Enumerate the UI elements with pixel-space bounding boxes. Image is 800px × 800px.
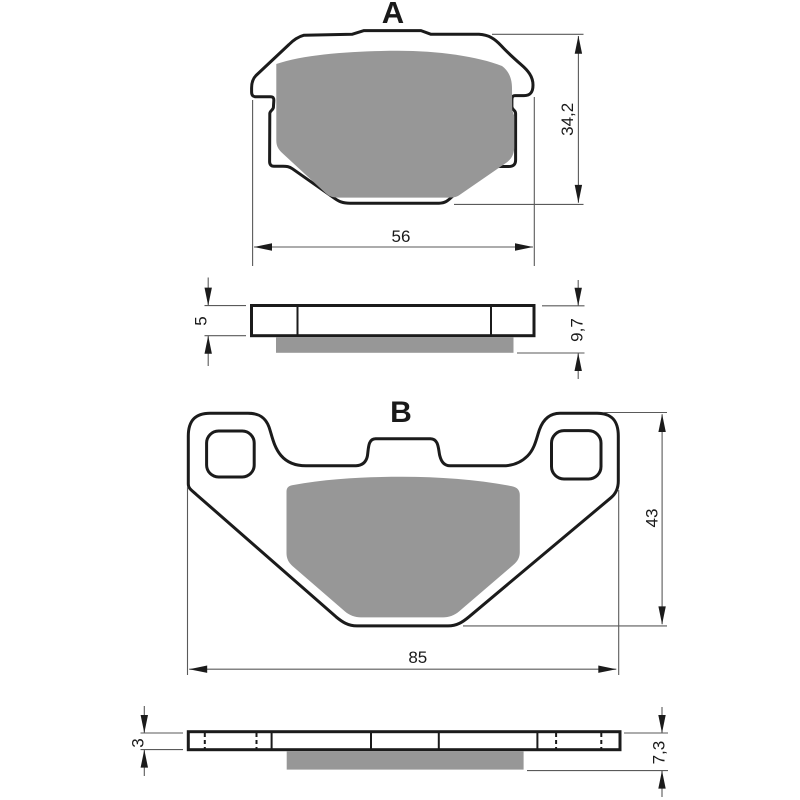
svg-text:7,3: 7,3 <box>650 741 669 765</box>
svg-text:56: 56 <box>392 227 411 246</box>
svg-text:34,2: 34,2 <box>558 103 577 136</box>
svg-text:43: 43 <box>643 509 662 528</box>
svg-text:3: 3 <box>129 738 148 747</box>
svg-text:85: 85 <box>408 648 427 667</box>
svg-text:B: B <box>390 396 412 429</box>
svg-text:A: A <box>382 0 404 30</box>
svg-text:9,7: 9,7 <box>568 318 587 342</box>
svg-text:5: 5 <box>192 316 211 325</box>
